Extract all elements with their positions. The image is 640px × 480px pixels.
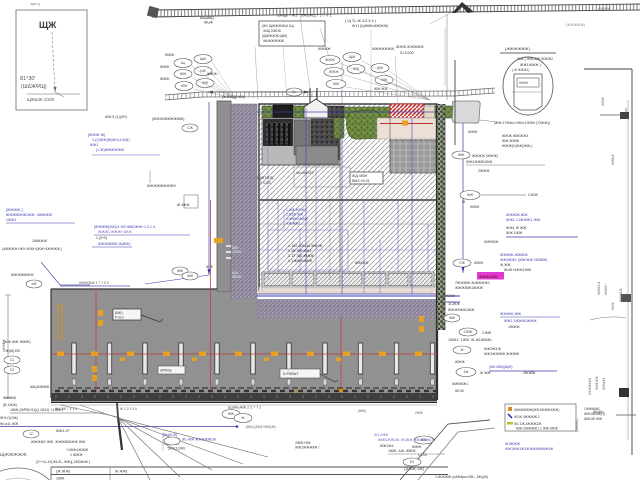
svg-text:2ЖЖ: 2ЖЖ: [415, 411, 423, 415]
svg-text:Ж 4ЖЖ: Ж 4ЖЖ: [177, 203, 190, 207]
svg-text:(B-1ЖЖ): (B-1ЖЖ): [3, 403, 17, 407]
svg-text:ШЩЖЖЖЖ: ШЩЖЖЖЖ: [30, 385, 50, 389]
svg-text:(5Ж): (5Ж): [115, 311, 123, 315]
svg-text:ЖЖV1 ~: ЖЖV1 ~: [604, 282, 608, 295]
svg-text:(ЖЖЖ/ЖЖЖ): (ЖЖЖ/ЖЖЖ): [222, 95, 245, 99]
svg-text:( Ж ЖЖЖ1): ( Ж ЖЖЖ1): [512, 68, 529, 72]
svg-text:CЖ: CЖ: [459, 261, 465, 265]
svg-text:CЖ: CЖ: [187, 126, 193, 130]
svg-text:(2++±1.41(Ж1/1L, ЖЖ](.1ЖD6±Ж.): (2++±1.41(Ж1/1L, ЖЖ](.1ЖD6±Ж.): [36, 460, 90, 464]
svg-text:ЖЖЖ ЖЖ/ЖЖ1: ЖЖЖ ЖЖ/ЖЖ1: [502, 134, 529, 138]
svg-text:ЖЖЖ: ЖЖЖ: [455, 360, 465, 364]
svg-text:Ж ЖЖ: Ж ЖЖ: [480, 371, 491, 375]
svg-text:ЖЖ: ЖЖ: [449, 316, 456, 320]
svg-text:3.ЖЖЖ1ЖЖЖ: 3.ЖЖЖ1ЖЖЖ: [286, 217, 308, 221]
svg-text:ЖЖЖЖ-ЖЖ: ЖЖЖЖ-ЖЖ: [500, 312, 522, 316]
svg-text:1ЖЖX. 1ЖЖ. Ж-Ж1ЖЖЖL: 1ЖЖX. 1ЖЖ. Ж-Ж1ЖЖЖL: [448, 338, 492, 342]
svg-text:ЩЖ: ЩЖ: [349, 55, 356, 59]
svg-text:ЖЖ 1ЖЖ: ЖЖ 1ЖЖ: [506, 231, 523, 235]
svg-text:ЩЖ: ЩЖ: [200, 57, 207, 61]
svg-text:ЖxЖ+4ЖЖ1ЖЖ: ЖxЖ+4ЖЖ1ЖЖ: [504, 268, 532, 272]
svg-text:W.I1 (ЩЖЖЬЖЖЖЖ): W.I1 (ЩЖЖЬЖЖЖЖ): [352, 24, 388, 28]
svg-text:ЖЖЖ: ЖЖЖ: [329, 70, 339, 74]
svg-text:ЖЖ1Ж ЖЖ: ЖЖ1Ж ЖЖ: [584, 417, 602, 421]
svg-text:1. 567-0051 Ш ЖЖ1Ж: 1. 567-0051 Ш ЖЖ1Ж: [288, 244, 323, 248]
svg-text:ЖCЖ: ЖCЖ: [455, 389, 465, 393]
svg-text:1ЖЩb - Ж1 - ЬЖЬЖщ 7 2 7 V 1: 1ЖЩb - Ж1 - ЬЖЬЖщ 7 2 7 V 1: [277, 14, 332, 18]
svg-text:[ЩЖЖЖЖ:ЩЖ]: [ЩЖЖЖЖ:ЩЖ]: [262, 34, 287, 38]
svg-text:ЬЖ: ЬЖ: [200, 69, 206, 73]
svg-text:ЖЖ: ЖЖ: [177, 269, 184, 273]
svg-text:(Жč ЩЖЖЖЖШ 1Щ: (Жč ЩЖЖЖЖШ 1Щ: [262, 24, 295, 28]
svg-text:ЖЖЖ: ЖЖЖ: [474, 261, 484, 265]
svg-text:Ж1.1Ж.4ЖЖЖ1Ж: Ж1.1Ж.4ЖЖЖ1Ж: [514, 422, 541, 426]
svg-text:ЖЖЖЖЖЖ1ЖЖ· 4ЖЖЖЖ: ЖЖЖЖЖЖ1ЖЖ· 4ЖЖЖЖ: [6, 213, 53, 217]
svg-text:EV: EV: [410, 460, 415, 464]
svg-text:CЖЖ: CЖЖ: [528, 193, 538, 197]
svg-text:P-01n: P-01n: [115, 316, 124, 320]
svg-text:30Щ 2Ж1Ж: 30Щ 2Ж1Ж: [263, 29, 282, 33]
svg-text:(Ж ЖЖ): (Ж ЖЖ): [56, 470, 71, 474]
svg-text:Ж1-nЖ9: Ж1-nЖ9: [374, 433, 388, 437]
svg-text:ЖЖ1ЖЖ1Ж1ЖЖЖЖЖЖЖ4Ж: ЖЖ1ЖЖ1Ж1ЖЖЖЖЖЖЖ4Ж: [505, 447, 554, 451]
svg-text:eЖ: eЖ: [31, 282, 37, 286]
svg-text:Ж,ЖЖ: Ж,ЖЖ: [500, 263, 511, 267]
svg-text:ЖЖЖЖЖ1ЖЖЖ: ЖЖЖЖЖ1ЖЖЖ: [455, 286, 484, 290]
svg-text:ЖЖЖ(1)ЖЖ(ЖЖ-): ЖЖЖ(1)ЖЖ(ЖЖ-): [502, 144, 532, 148]
svg-text:2ЖЖ+5Ж: 2ЖЖ+5Ж: [295, 441, 311, 445]
svg-text:1ЖЖЖ: 1ЖЖЖ: [508, 325, 520, 329]
svg-text:щаb.щ: щаb.щ: [30, 2, 40, 6]
svg-text:Ж1Ж 4ЖЖЖЖ-1: Ж1Ж 4ЖЖЖЖ-1: [514, 415, 540, 419]
svg-text:(ЖЖЖЖЖ): (ЖЖЖЖЖ): [566, 23, 585, 27]
svg-text:ЖЖЖ: ЖЖЖ: [160, 77, 170, 81]
svg-text:(500-(200)+500(Ж): (500-(200)+500(Ж): [246, 425, 276, 429]
svg-text:ЖЖ9ЖЖ1: ЖЖ9ЖЖ1: [452, 382, 468, 386]
svg-text:CЖЖ: CЖЖ: [482, 331, 492, 335]
svg-text:ЖЖ: ЖЖ: [232, 246, 239, 250]
svg-text:ЖЖ1ЖЖЖ4Ж /: ЖЖ1ЖЖЖ4Ж /: [295, 446, 319, 450]
svg-text:ЖЖЖЖЖЖЖЖ%: ЖЖЖЖЖЖЖЖ%: [147, 184, 176, 188]
svg-text:1ЖЖЖ41Ж: 1ЖЖЖ41Ж: [588, 378, 592, 395]
svg-text:W=a11 ЖЖ: W=a11 ЖЖ: [0, 422, 19, 426]
svg-text:CЖ(Ж)100: CЖ(Ж)100: [3, 349, 20, 353]
svg-text:[Ж4Ж Ж]: [Ж4Ж Ж]: [163, 433, 177, 437]
svg-text:7ЖЖЖЖ ЖЖЖЖЖ1: 7ЖЖЖЖ ЖЖЖЖЖ1: [455, 281, 490, 285]
svg-text:ЩЭЖЬЖЖ 2 2 7 7 2: ЩЭЖЬЖЖ 2 2 7 7 2: [228, 406, 261, 410]
svg-text:(ЖЖ): (ЖЖ): [358, 409, 366, 413]
svg-text:4.Ж ЖЖ1: 4.Ж ЖЖ1: [286, 222, 300, 226]
svg-text:ЖЖЖЖЖЖЖ: ЖЖЖЖЖЖЖ: [372, 47, 395, 51]
svg-text:1.ЖЖЖЖ (cd5Mpa+05L, JЖ(p5): 1.ЖЖЖЖ (cd5Mpa+05L, JЖ(p5): [435, 475, 488, 479]
svg-text:1щ: 1щ: [181, 61, 186, 65]
svg-text:ЖД 495rf: ЖД 495rf: [352, 174, 367, 178]
svg-text:(W0.45M)(ЩЖ): (W0.45M)(ЩЖ): [489, 365, 512, 369]
svg-text:Ж% (1(0Ж): Ж% (1(0Ж): [0, 416, 18, 420]
svg-text:BldS 49-01: BldS 49-01: [352, 179, 370, 183]
svg-text:9m×6ЖЯЭ: 9m×6ЖЯЭ: [296, 171, 314, 175]
svg-text:ЖЖЖЖЖ 1 7 7 6 5: ЖЖЖЖЖ 1 7 7 6 5: [79, 281, 109, 285]
svg-text:1ЖЖ: 1ЖЖ: [56, 477, 65, 480]
svg-text:C2: C2: [10, 368, 14, 372]
svg-text:ЖЖ1-1F: ЖЖ1-1F: [56, 429, 70, 433]
svg-text:ЖЖ: ЖЖ: [181, 84, 188, 88]
svg-text:[ЖЖЖЖ]3W(11.90f ЖЖ2ЖЖ+1.2.1.0: [ЖЖЖЖ]3W(11.90f ЖЖ2ЖЖ+1.2.1.0: [94, 225, 155, 229]
svg-text:ЖЖ1ЖЖЖЖ ЖЖЖЖ: ЖЖ1ЖЖЖЖ ЖЖЖЖ: [484, 352, 520, 356]
svg-text:2ЖЖЖ: 2ЖЖЖ: [478, 169, 490, 173]
svg-text:ЖЖЖЖ: ЖЖЖЖ: [3, 396, 17, 400]
svg-text:ЩЖЬtЖ 1/200: ЩЖЬtЖ 1/200: [27, 97, 55, 102]
svg-text:L2.0X: L2.0X: [418, 453, 428, 457]
svg-text:ЖЖ1 Ж ЖЖ: ЖЖ1 Ж ЖЖ: [506, 226, 527, 230]
svg-text:ЖЖЖ·ЖЖЖЖЖ: ЖЖЖ·ЖЖЖЖЖ: [396, 45, 424, 49]
svg-text:1ЖЖ. ΔЖ. ЖЖЖ: 1ЖЖ. ΔЖ. ЖЖЖ: [388, 449, 416, 453]
svg-text:(ЖЖ ЖЖ ЖЖЖ): (ЖЖ ЖЖ ЖЖЖ): [3, 340, 31, 344]
svg-text:ЖЖ.ЖЖЖ: ЖЖ.ЖЖЖ: [502, 139, 520, 143]
svg-text:ЖЖЖЖЖЖ(ЖЖ1ЖЖЖ4ЖЖ): ЖЖЖЖЖЖ(ЖЖ1ЖЖЖ4ЖЖ): [514, 408, 559, 412]
svg-text:ЖЖЖЖ-ЖЖЖЖ: ЖЖЖЖ-ЖЖЖЖ: [500, 253, 528, 257]
svg-text:C1: C1: [10, 358, 14, 362]
svg-text:1ЖЖЖЖ: 1ЖЖЖЖ: [32, 239, 48, 243]
svg-text:ЖЖЖ1ЖЖ: ЖЖЖ1ЖЖ: [479, 275, 498, 279]
svg-text:[ЖЖЖЖ..]: [ЖЖЖЖ..]: [6, 208, 23, 212]
svg-text:ЖЖ1Ж4: ЖЖ1Ж4: [380, 444, 394, 448]
svg-text:ЖЖ: ЖЖ: [187, 274, 194, 278]
svg-text:'5Ж1(1(0Ж): '5Ж1(1(0Ж): [167, 447, 185, 451]
svg-text:ШщЖЩ: ШщЖЩ: [200, 16, 214, 20]
svg-text:ЩЖ: ЩЖ: [39, 20, 57, 30]
svg-text:ЖЖЖ: ЖЖЖ: [601, 97, 605, 106]
svg-text:ЖЖ: ЖЖ: [232, 271, 239, 275]
svg-text:(ШΔЖΨЩ): (ШΔЖΨЩ): [21, 84, 47, 90]
svg-text:ЖЖ1Ж: ЖЖ1Ж: [611, 154, 615, 165]
svg-text:ЖЖ4Ж1: ЖЖ4Ж1: [602, 377, 606, 390]
svg-text:+1ЖЖ±ЖЖЖ: +1ЖЖ±ЖЖЖ: [66, 448, 89, 452]
svg-text:ЩЖЖЖЖЖ: ЩЖЖЖЖЖ: [0, 452, 27, 458]
svg-text:ЖЬЖЖЖЖЖ: ЖЬЖЖЖЖЖ: [263, 39, 285, 43]
svg-text:(ЩЖ7ФЭ): (ЩЖ7ФЭ): [256, 176, 274, 180]
svg-text:ЖЖЖЖЖЖЖ: ЖЖЖЖЖЖЖ: [11, 273, 34, 277]
svg-text:(ЖЖЖ1): (ЖЖЖ1): [575, 419, 579, 432]
svg-text:ЖЖ1ЖЖЖ1ЖЖ: ЖЖ1ЖЖЖ1ЖЖ: [466, 160, 493, 164]
svg-text:ЖЖЖ1 ЖЖЖ+1ЖЖ: ЖЖЖ1 ЖЖЖ+1ЖЖ: [98, 230, 132, 234]
svg-text:ЖЖ2Ж1Ж: ЖЖ2Ж1Ж: [484, 347, 502, 351]
svg-text:1Ж: 1Ж: [463, 370, 469, 374]
svg-text:( Щ 7L-Ж 4.0.4.5 ): ( Щ 7L-Ж 4.0.4.5 ): [345, 19, 377, 23]
svg-text:(4ЖЖЖЖ+Ж% 5048+(ЖЖ+4ЖЖЖЖ,): (4ЖЖЖЖ+Ж% 5048+(ЖЖ+4ЖЖЖЖ,): [2, 247, 62, 251]
svg-text:Ж1Ж: Ж1Ж: [611, 302, 615, 310]
svg-text:2ЖЖЖ: 2ЖЖЖ: [523, 371, 536, 375]
svg-text:ЖЖ: ЖЖ: [458, 153, 465, 157]
svg-text:4. 1ЖЖЖЖЖЖ: 4. 1ЖЖЖЖЖЖ: [288, 259, 313, 263]
svg-text:ЖЖЖ: ЖЖЖ: [165, 53, 175, 57]
svg-text:(ЖЖЖ/ЖЖЖЖЖЖ): (ЖЖЖ/ЖЖЖЖЖЖ): [152, 117, 184, 121]
svg-text:ЖЖЖ: ЖЖЖ: [519, 81, 528, 85]
svg-text:81°30': 81°30': [20, 76, 36, 82]
svg-text:ЖЖ1 1ЖЖЖ1ЖЖЖ: ЖЖ1 1ЖЖЖ1ЖЖЖ: [504, 319, 537, 323]
svg-text:ЖЖ: ЖЖ: [228, 412, 235, 416]
svg-text:ЖЖ1ЖЖ: ЖЖ1ЖЖ: [355, 261, 369, 265]
svg-text:aP500p: aP500p: [160, 369, 172, 373]
svg-text:ЖЖЖ: ЖЖЖ: [470, 205, 480, 209]
svg-text:1CЖЖ: 1CЖЖ: [448, 302, 460, 306]
svg-text:ЖЖЖЖЖЖ-Ж(ЖЖ): ЖЖЖЖЖЖ-Ж(ЖЖ): [98, 242, 131, 246]
svg-text:ЖЖЖЖ (ЖЖЖ): ЖЖЖЖ (ЖЖЖ): [472, 154, 498, 158]
svg-text:ЖЖ1: ЖЖ1: [90, 143, 98, 147]
svg-text:ЖЖЖ: ЖЖЖ: [468, 130, 478, 134]
svg-text:ЖЖ 5-(1)(4H): ЖЖ 5-(1)(4H): [105, 115, 127, 119]
svg-text:RЖЖЖ: RЖЖЖ: [443, 294, 456, 298]
svg-text:(1-Ж)ЖЖЖЖЖЖ: (1-Ж)ЖЖЖЖЖЖ: [96, 148, 125, 152]
svg-text:ЖЖ1ЖЖЖ(1): ЖЖ1ЖЖЖ(1): [584, 412, 605, 416]
svg-text:Ж ЖЖ]: Ж ЖЖ]: [115, 470, 127, 474]
svg-text:ЖЖ: ЖЖ: [180, 72, 187, 76]
svg-text:2.Ж1Ж ЖЖ: 2.Ж1Ж ЖЖ: [286, 213, 303, 217]
svg-text:ЖЖЖ: ЖЖЖ: [325, 58, 335, 62]
svg-text:ЖЖ9ЖЖ: ЖЖ9ЖЖ: [484, 240, 499, 244]
svg-text:ЖЖ: ЖЖ: [333, 82, 340, 86]
svg-text:ЖtЖ1ЖЖ1Ж. Ж1ЖЖ ЖЖЖЖЖ1Ж: ЖtЖ1ЖЖ1Ж. Ж1ЖЖ ЖЖЖЖЖ1Ж: [378, 438, 436, 442]
svg-text:(ЖЖЖЖЖЖ): (ЖЖЖЖЖЖ): [505, 46, 530, 51]
svg-text:ЖЖЖ: ЖЖЖ: [160, 65, 170, 69]
svg-text:1-(2)ЖЖ(Ж)W×(1.6(N): 1-(2)ЖЖ(Ж)W×(1.6(N): [92, 138, 130, 142]
svg-text:ЖЖ1 ×1ЖЖЖ1-ЖЖ: ЖЖ1 ×1ЖЖЖ1-ЖЖ: [506, 218, 541, 222]
svg-text:1F:1200: 1F:1200: [258, 181, 271, 185]
svg-text:ЖЖ1ЖЖЖ ): ЖЖ1ЖЖЖ ): [520, 63, 541, 67]
svg-text:ЖЬЖ: ЖЬЖ: [204, 21, 214, 25]
svg-text:ЖЖЖ4 1: ЖЖЖ4 1: [597, 282, 601, 295]
svg-text:CЖЖ: CЖЖ: [464, 330, 474, 334]
svg-text:ЖЖ: ЖЖ: [467, 193, 474, 197]
svg-text:1 ЖЖЖ: 1 ЖЖЖ: [70, 453, 83, 457]
svg-text:[ЖЖЖ·Ж]: [ЖЖЖ·Ж]: [88, 133, 105, 137]
svg-text:3. 1F 350 ЖtЖЖ: 3. 1F 350 ЖtЖЖ: [288, 254, 314, 258]
svg-text:(11ЖЖ) 2Ж]: (11ЖЖ) 2Ж]: [404, 467, 424, 471]
svg-text:ЖФ: ЖФ: [206, 264, 213, 269]
svg-text:12: 12: [29, 432, 33, 436]
svg-text:ЖЖ4ЖЖ1 (ЖЖ:ЖЖ 250ЖЖ): ЖЖ4ЖЖ1 (ЖЖ:ЖЖ 250ЖЖ): [500, 258, 547, 262]
svg-text:1ЖЖ1: 1ЖЖ1: [6, 218, 16, 222]
svg-text:ЖЖЖЖ!! ЖЖ. ЖЖЖЖЖЖЖ ЖЖ: ЖЖЖЖ!! ЖЖ. ЖЖЖЖЖЖЖ ЖЖ: [31, 440, 86, 444]
svg-text:ЖЖ-1ЖЖЖЖ1 1 ЖЖ 4ЖЖ: ЖЖ-1ЖЖЖЖ1 1 ЖЖ 4ЖЖ: [516, 427, 558, 431]
svg-text:ЖЖ1ЖЖ: ЖЖ1ЖЖ: [595, 376, 599, 390]
svg-text:ЖЖЖЖ: ЖЖЖЖ: [318, 47, 331, 51]
svg-text:Ж 1 2 3 4 5: Ж 1 2 3 4 5: [120, 407, 137, 411]
svg-text:N-P500aT: N-P500aT: [283, 372, 298, 376]
svg-text:1ЖЖ (ЖP50-51)(1-0611)' L1ЖЖ ): 1ЖЖ (ЖP50-51)(1-0611)' L1ЖЖ ): [10, 408, 63, 412]
svg-text:1-(2+0): 1-(2+0): [96, 236, 107, 240]
svg-text:ШЩЖЖ: ШЩЖЖ: [598, 7, 610, 11]
svg-text:ЖЖЖ9ЖЖ1ЖЖ: ЖЖЖ9ЖЖ1ЖЖ: [448, 308, 475, 312]
svg-text:ЖЖЖЖ-ЖЖ: ЖЖЖЖ-ЖЖ: [506, 213, 528, 217]
svg-text:S=1/200: S=1/200: [400, 51, 414, 55]
svg-text:Ж1ЖЖЖ: Ж1ЖЖЖ: [505, 442, 521, 446]
svg-text:ЖЖЖ-: ЖЖЖ-: [207, 72, 219, 76]
svg-text:(ЖЖ:1790w×1060×1905H (72ЖЖ)): (ЖЖ:1790w×1060×1905H (72ЖЖ)): [494, 121, 550, 125]
svg-text:1.ЖЖ ЖЖЖ1: 1.ЖЖ ЖЖЖ1: [286, 208, 306, 212]
svg-text:ЖЖ-ЖЖ: ЖЖ-ЖЖ: [374, 87, 389, 91]
svg-text:1ЖЖЖЖ1: 1ЖЖЖЖ1: [584, 407, 600, 411]
